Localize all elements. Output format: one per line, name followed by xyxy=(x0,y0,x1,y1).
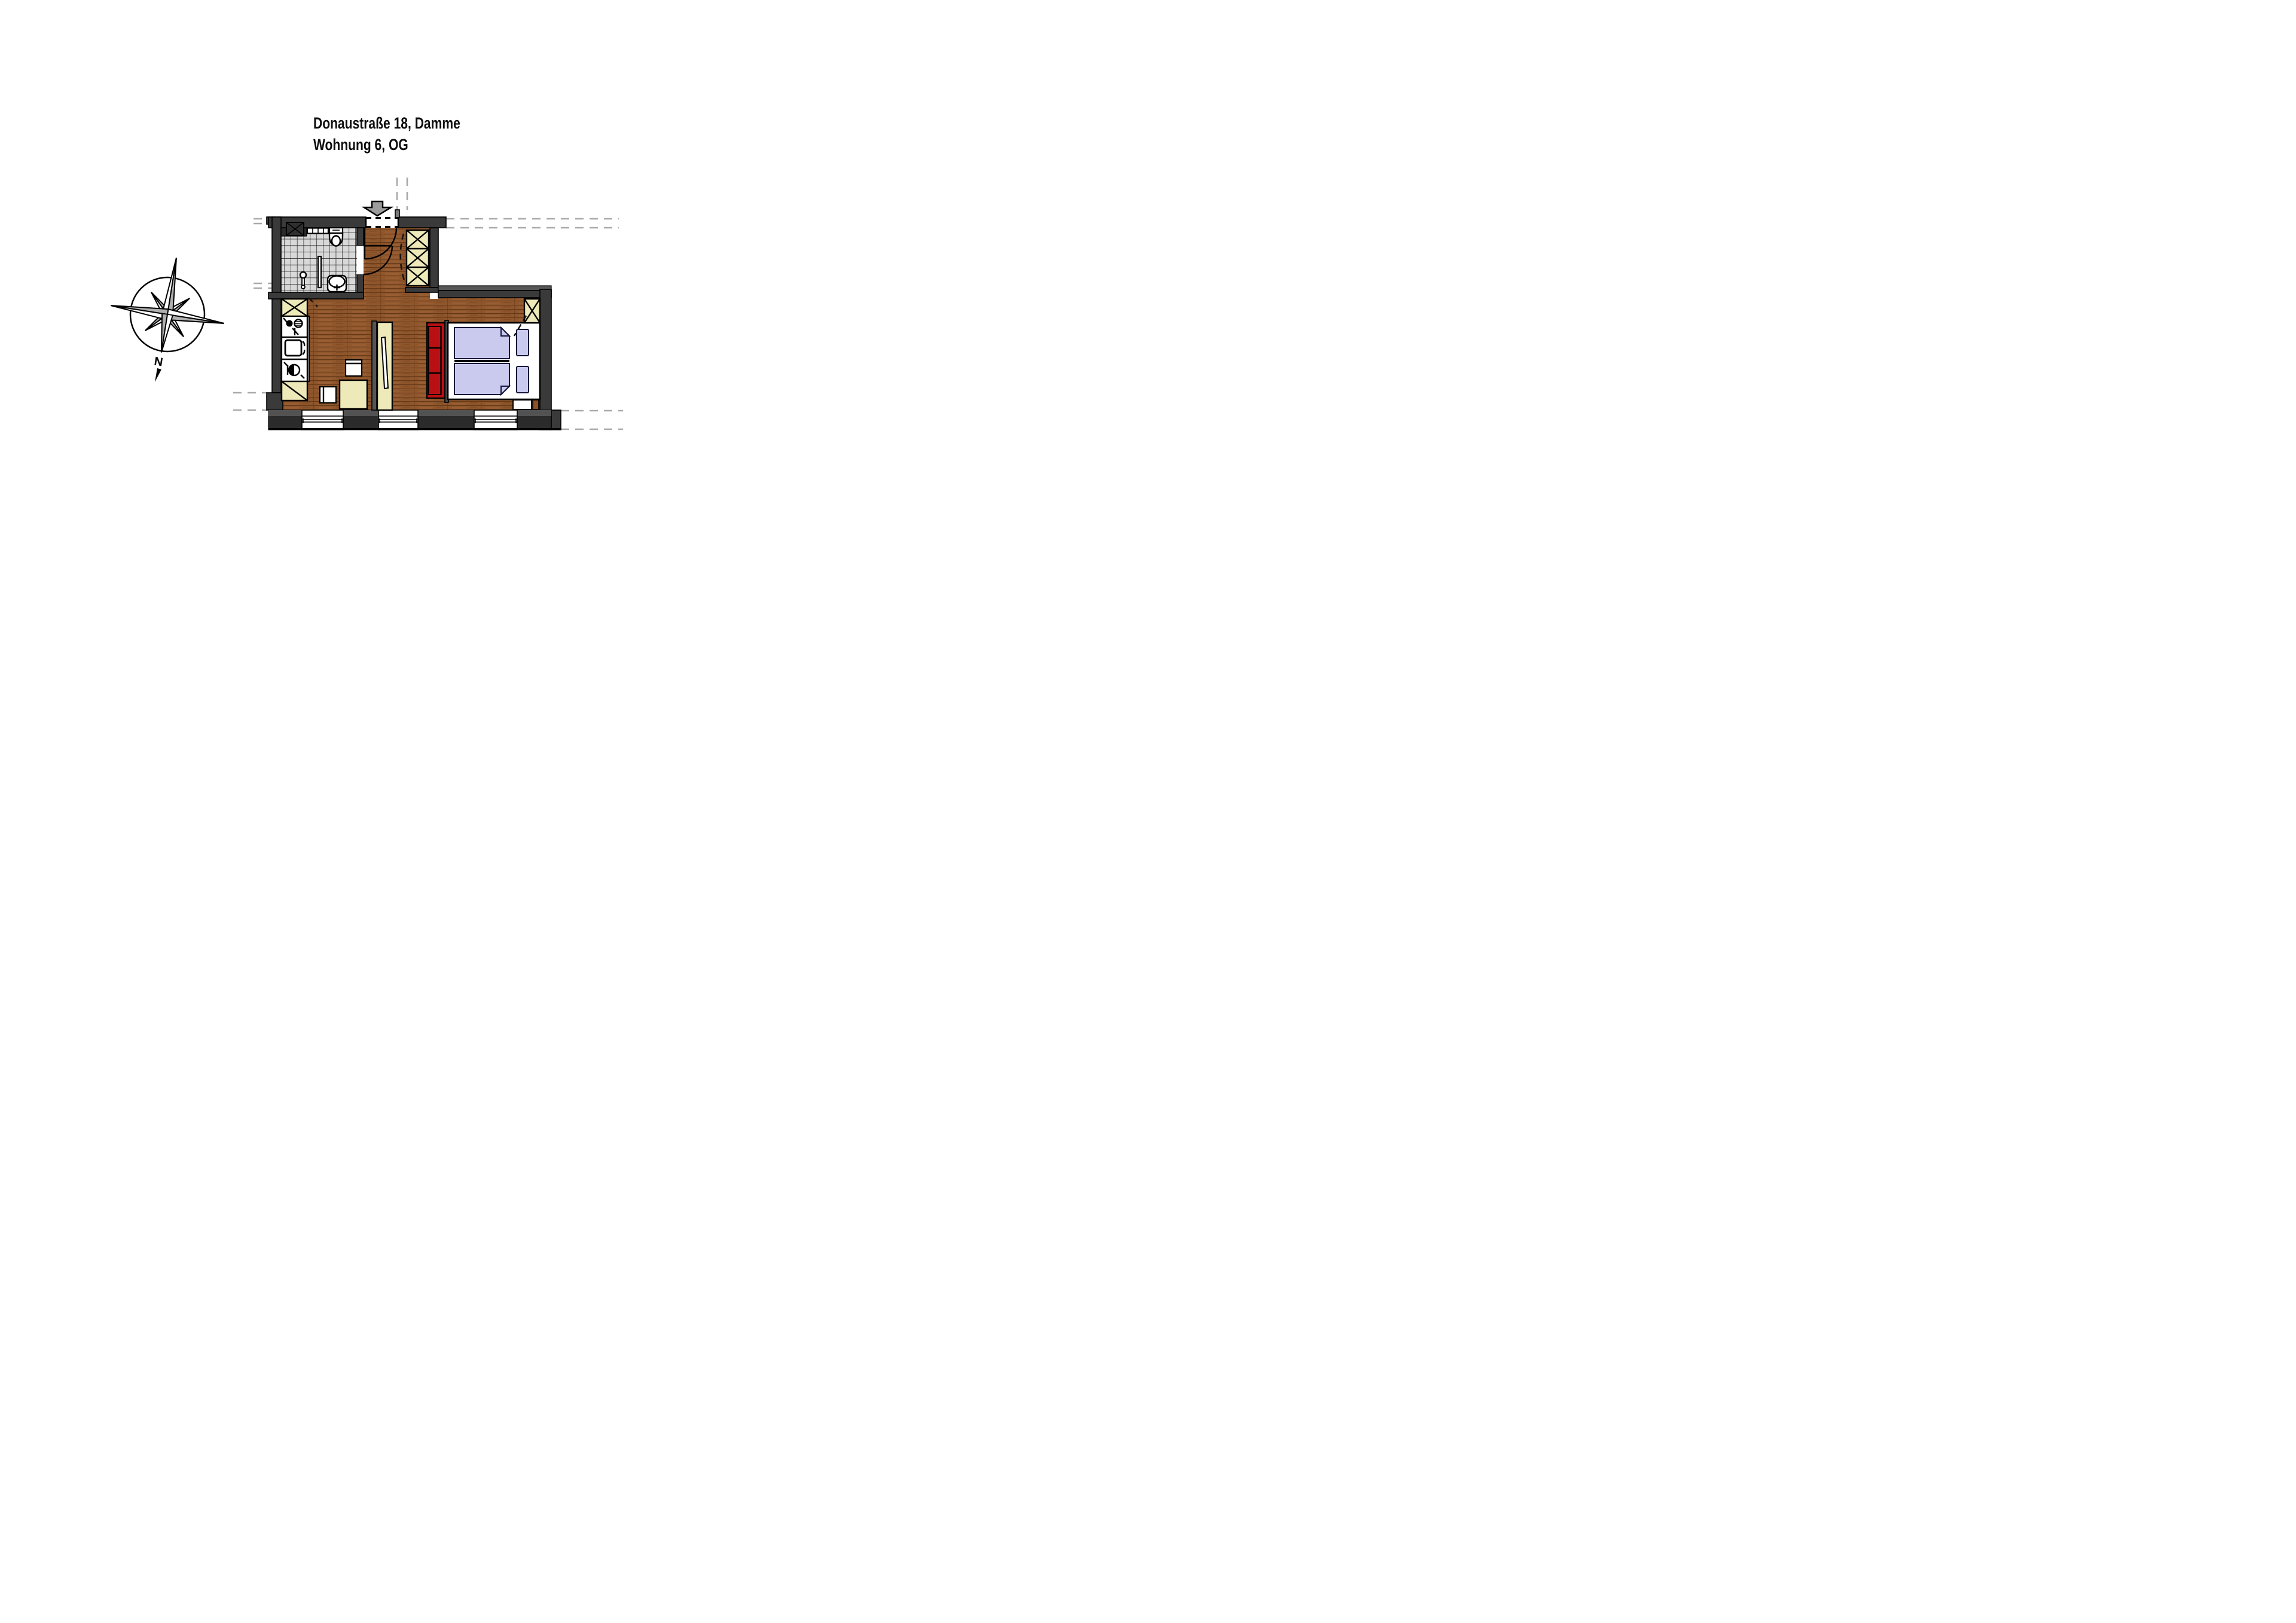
sofa-icon xyxy=(427,320,448,402)
dining-table-icon xyxy=(340,380,367,409)
window-icon xyxy=(302,410,343,430)
toilet-icon xyxy=(329,228,343,246)
nightstand-icon xyxy=(513,400,532,409)
north-arrow-icon xyxy=(155,368,161,382)
bottom-right-wall-step xyxy=(551,410,561,430)
title-apartment: Wohnung 6, OG xyxy=(313,134,460,155)
hall-right-wall xyxy=(430,228,438,288)
bottom-wall-outer-line xyxy=(268,428,561,430)
wardrobe-icon xyxy=(407,230,429,286)
bathroom-bottom-wall xyxy=(268,292,364,299)
chair-icon xyxy=(320,387,336,403)
compass-rose-icon: N xyxy=(105,249,233,382)
bottom-left-wall-step xyxy=(267,393,283,410)
pillow-icon xyxy=(517,329,529,356)
floor-plan-drawing: N xyxy=(0,0,765,541)
room-divider-icon xyxy=(372,321,392,410)
entrance-door-stop xyxy=(395,210,399,218)
bedside-step xyxy=(533,400,539,409)
left-wall xyxy=(272,217,281,393)
right-wall xyxy=(540,289,551,430)
top-wall-right xyxy=(398,217,446,228)
bathroom-wall-lower xyxy=(357,274,364,292)
divider-wall-stub xyxy=(372,321,377,410)
shaft-icon xyxy=(286,222,304,236)
base-cabinet-icon xyxy=(282,381,307,401)
towel-radiator-icon xyxy=(307,228,328,234)
pillow-icon xyxy=(517,366,529,393)
page-title: Donaustraße 18, Damme Wohnung 6, OG xyxy=(313,112,460,155)
north-label: N xyxy=(153,355,164,369)
chair-icon xyxy=(346,360,362,376)
window-icon xyxy=(474,410,517,430)
bathroom-door-opening xyxy=(357,246,364,274)
washbasin-icon xyxy=(328,276,346,292)
top-wall-left xyxy=(268,217,366,228)
title-address: Donaustraße 18, Damme xyxy=(313,112,460,134)
double-bed-icon xyxy=(448,323,540,399)
shower-screen-icon xyxy=(318,256,321,288)
floor-plan-page: Donaustraße 18, Damme Wohnung 6, OG xyxy=(0,0,765,541)
tall-cabinet-icon xyxy=(282,299,307,316)
wardrobe-icon xyxy=(524,299,540,323)
entrance-arrow-icon xyxy=(364,201,391,216)
window-icon xyxy=(378,410,418,430)
bathroom-wall-upper xyxy=(357,228,364,246)
hall-wall-end-cap xyxy=(405,288,438,292)
bedroom-top-wall xyxy=(438,291,551,298)
bottom-wall xyxy=(268,410,561,430)
bedroom-top-wall-light-band xyxy=(438,286,551,291)
